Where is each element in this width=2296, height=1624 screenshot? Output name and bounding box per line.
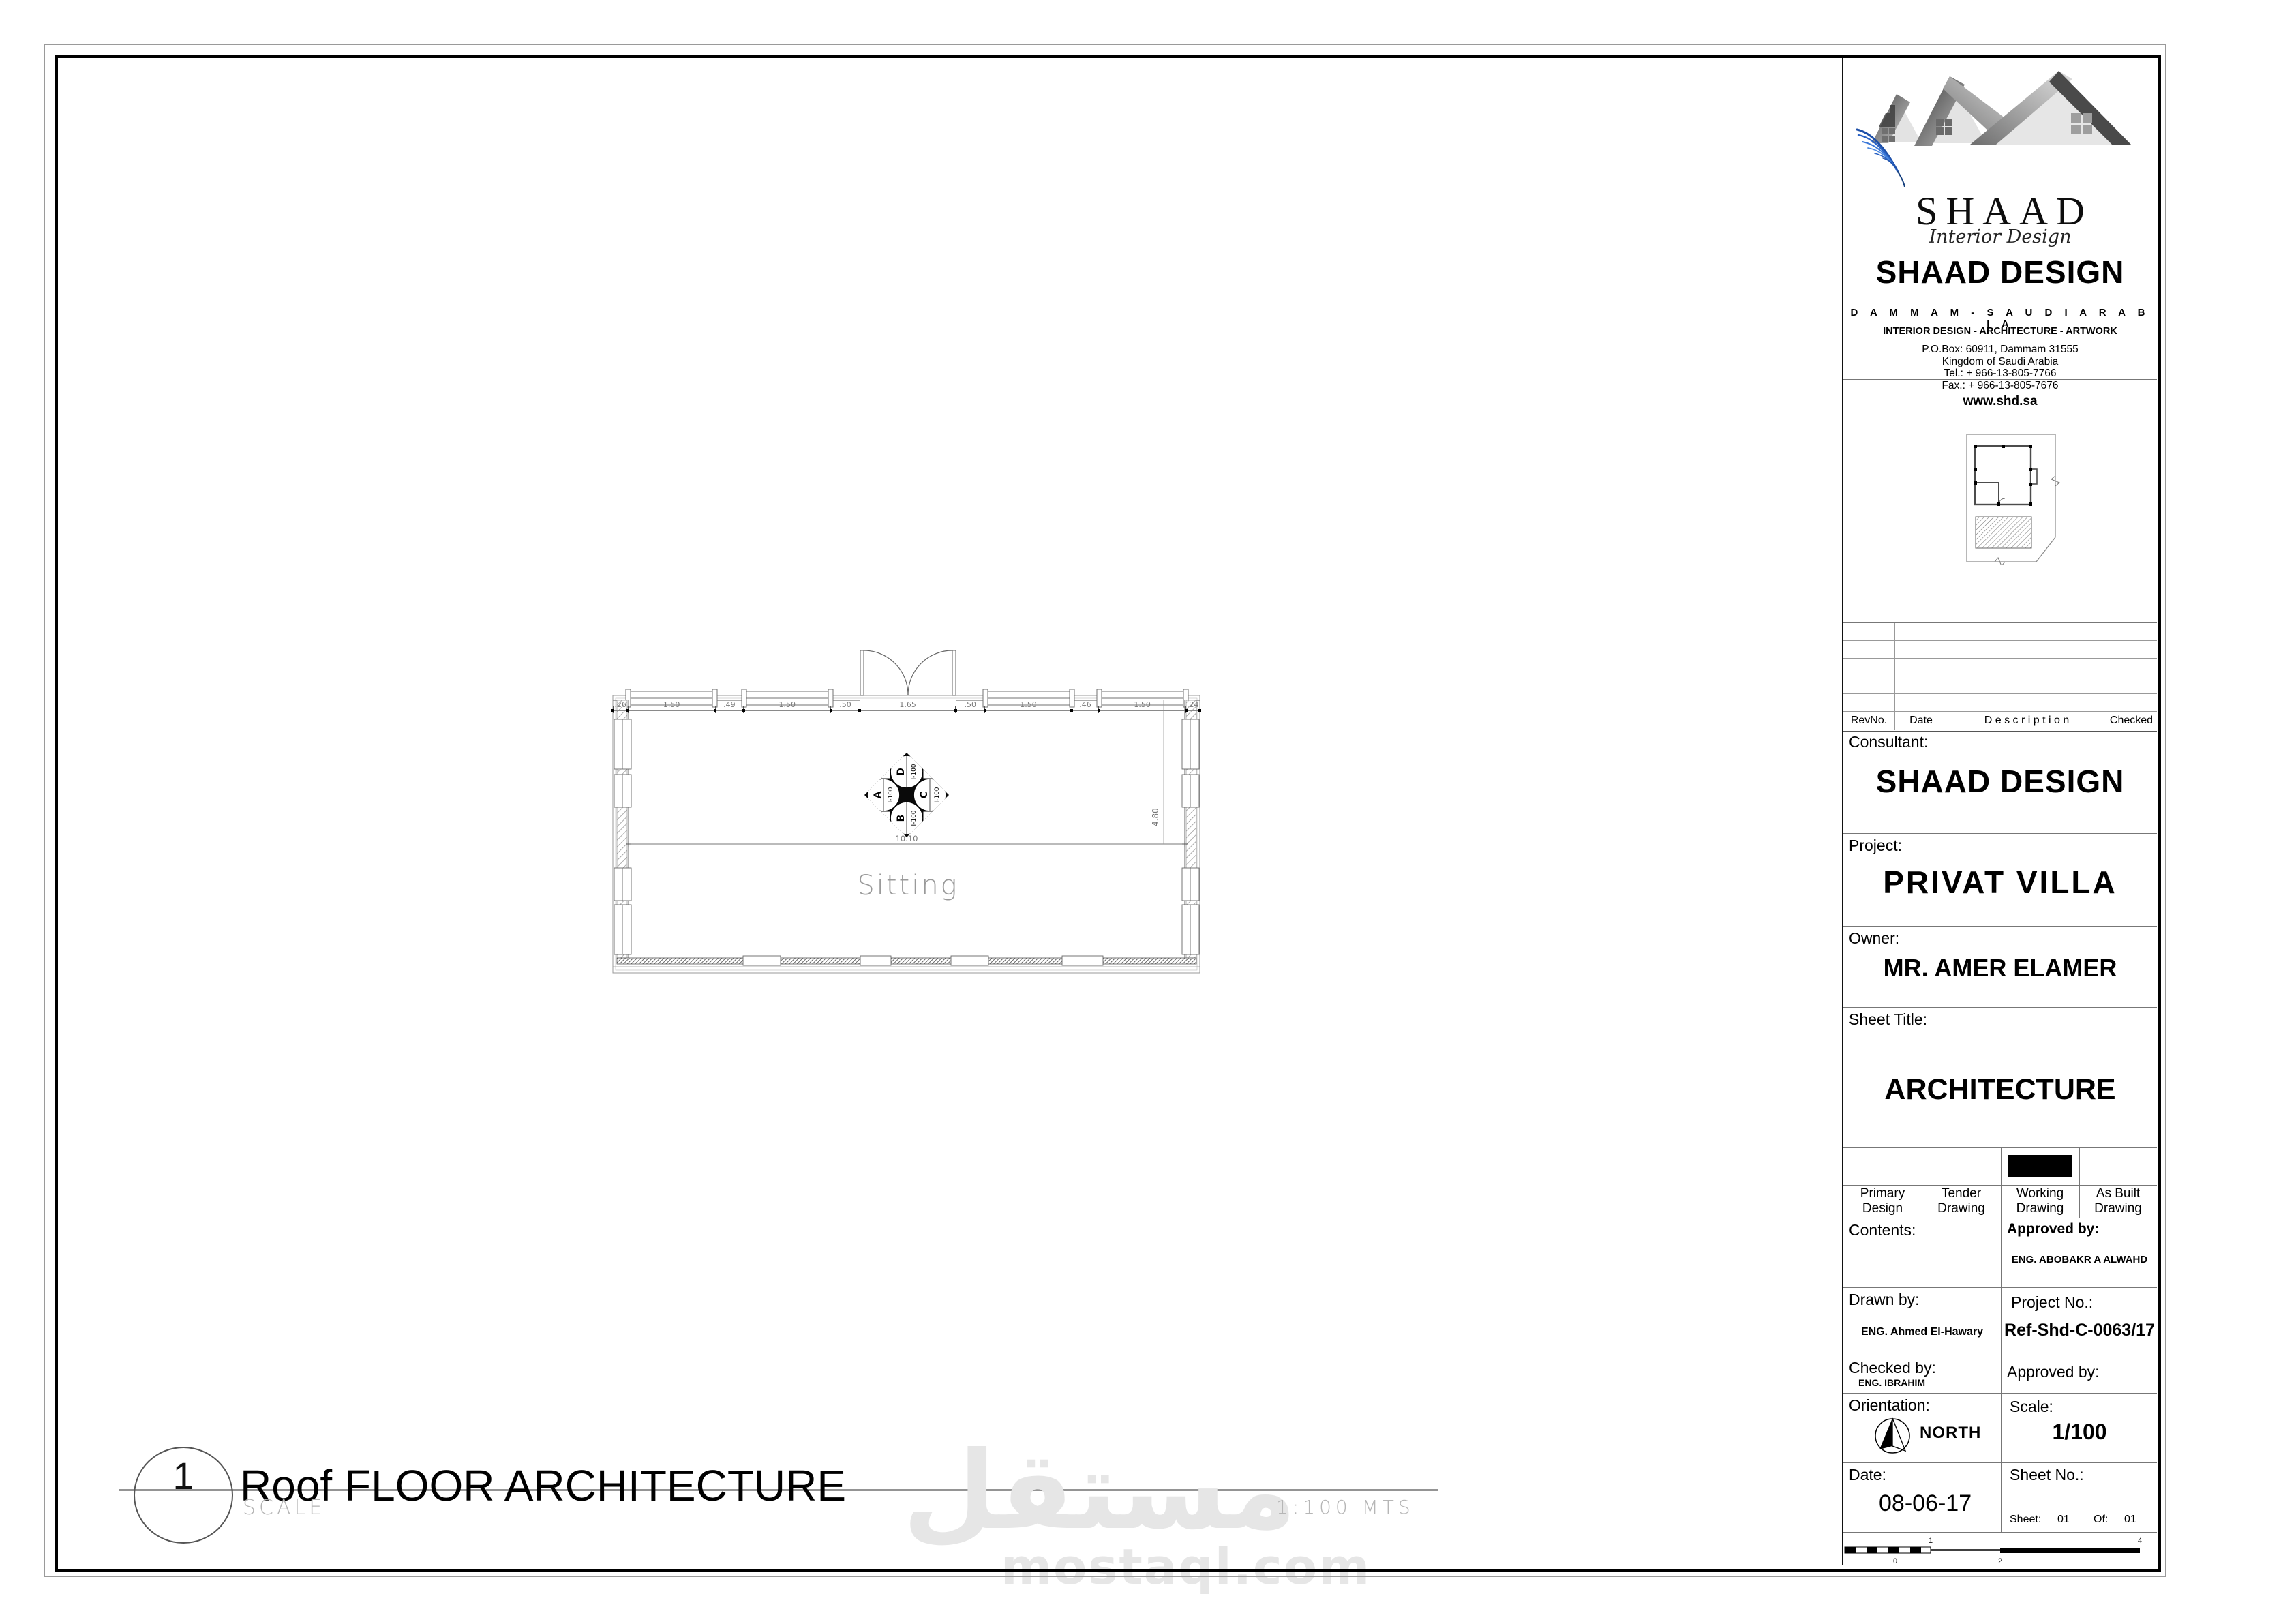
marker-bottom-ref: I-100 xyxy=(911,810,918,826)
approved-by2-label: Approved by: xyxy=(2007,1363,2100,1381)
watermark-latin: mostaql.com xyxy=(1001,1538,1301,1595)
marker-left-letter: A xyxy=(873,791,883,798)
dimension-label: 1.50 xyxy=(1134,700,1151,709)
company-name: SHAAD DESIGN xyxy=(1843,254,2157,290)
north-arrow-icon xyxy=(1872,1415,1913,1455)
company-logo-graphic xyxy=(1856,61,2145,191)
scalebar-4: 4 xyxy=(2138,1537,2142,1545)
type-tender-drawing: Tender Drawing xyxy=(1922,1186,2001,1216)
dimension-tick-dot xyxy=(858,709,861,712)
project-no-label: Project No.: xyxy=(2011,1293,2093,1312)
revision-row xyxy=(1843,694,2157,712)
orientation-value: NORTH xyxy=(1920,1424,1981,1443)
dimension-tick-dot xyxy=(1185,709,1188,712)
of-label: Of: xyxy=(2094,1514,2108,1526)
logo-tagline: Interior Design xyxy=(1864,226,2136,247)
dimension-label: .50 xyxy=(839,700,851,709)
dimension-tick-dot xyxy=(1098,709,1100,712)
drawing-title: Roof FLOOR ARCHITECTURE xyxy=(240,1460,846,1511)
scale-note: 1:100 MTS xyxy=(1276,1496,1415,1518)
dimension-label: .49 xyxy=(723,700,736,709)
drawn-by-label: Drawn by: xyxy=(1849,1291,1920,1309)
revision-table: RevNo. Date D e s c r i p t i o n Checke… xyxy=(1843,622,2157,730)
dimension-label: .26 xyxy=(614,700,626,709)
address-line: Kingdom of Saudi Arabia xyxy=(1843,356,2157,368)
drawn-by-value: ENG. Ahmed El-Hawary xyxy=(1843,1326,2001,1338)
contents-label: Contents: xyxy=(1849,1221,1916,1239)
marker-bottom-letter: B xyxy=(896,815,907,822)
checked-by-label: Checked by: xyxy=(1849,1359,1936,1377)
address-line: P.O.Box: 60911, Dammam 31555 xyxy=(1843,344,2157,356)
dimension-tick-dot xyxy=(1198,709,1201,712)
revision-row xyxy=(1843,676,2157,694)
rev-col-revno: RevNo. xyxy=(1843,715,1894,727)
project-value: PRIVAT VILLA xyxy=(1843,864,2157,901)
dimension-tick-dot xyxy=(830,709,832,712)
scalebar-1: 1 xyxy=(1929,1537,1933,1545)
of-number: 01 xyxy=(2124,1514,2136,1526)
dimension-tick-dot xyxy=(1070,709,1073,712)
consultant-section: Consultant: SHAAD DESIGN xyxy=(1843,730,2157,833)
date-section: Date: 08-06-17 Sheet No.: Sheet: 01 Of: … xyxy=(1843,1462,2157,1532)
company-services: INTERIOR DESIGN - ARCHITECTURE - ARTWORK xyxy=(1843,326,2157,337)
sheet-title-value: ARCHITECTURE xyxy=(1843,1073,2157,1107)
drawn-by-section: Drawn by: ENG. Ahmed El-Hawary Project N… xyxy=(1843,1287,2157,1357)
dimension-label: .24 xyxy=(1187,700,1199,709)
revision-row xyxy=(1843,641,2157,659)
project-section: Project: PRIVAT VILLA xyxy=(1843,833,2157,926)
dimension-label: 1.50 xyxy=(1020,700,1037,709)
address-line: Tel.: + 966-13-805-7766 xyxy=(1843,367,2157,380)
owner-value: MR. AMER ELAMER xyxy=(1843,954,2157,982)
dimension-tick-dot xyxy=(714,709,716,712)
dimension-label: 1.50 xyxy=(779,700,796,709)
scale-caption: SCALE xyxy=(243,1496,325,1520)
sheet-label: Sheet: xyxy=(2010,1514,2041,1526)
consultant-label: Consultant: xyxy=(1849,733,1928,751)
contents-section: Contents: Approved by: ENG. ABOBAKR A AL… xyxy=(1843,1218,2157,1287)
approved-by-label: Approved by: xyxy=(2007,1221,2099,1237)
view-number-bubble: 1 xyxy=(134,1447,233,1544)
marker-right-ref: I-100 xyxy=(934,787,941,802)
key-plan-thumbnail xyxy=(1966,434,2061,565)
title-block: SHAAD Interior Design SHAAD DESIGN D A M… xyxy=(1842,55,2157,1565)
type-working-drawing: Working Drawing xyxy=(2001,1186,2079,1216)
checked-by-value: ENG. IBRAHIM xyxy=(1858,1377,1925,1388)
owner-section: Owner: MR. AMER ELAMER xyxy=(1843,926,2157,1007)
scalebar-2: 2 xyxy=(1998,1557,2002,1565)
scale-bar-graphic: 0 1 2 4 xyxy=(1843,1533,2157,1566)
revision-row xyxy=(1843,659,2157,676)
company-section: SHAAD Interior Design SHAAD DESIGN D A M… xyxy=(1843,55,2157,379)
marker-left-ref: I-100 xyxy=(888,787,894,802)
orientation-label: Orientation: xyxy=(1849,1396,1930,1415)
sheet-title-section: Sheet Title: ARCHITECTURE xyxy=(1843,1007,2157,1147)
consultant-value: SHAAD DESIGN xyxy=(1843,763,2157,800)
drawing-sheet: مستقل mostaql.com xyxy=(0,0,2296,1624)
top-dimension-strip: .261.50.491.50.501.65.501.50.461.50.24 xyxy=(613,700,1200,713)
type-as-built-drawing: As Built Drawing xyxy=(2079,1186,2157,1216)
bottom-wall xyxy=(617,958,1196,964)
revision-table-header: RevNo. Date D e s c r i p t i o n Checke… xyxy=(1843,712,2157,732)
dimension-label: 1.50 xyxy=(663,700,680,709)
rev-col-date: Date xyxy=(1894,715,1948,727)
dimension-tick-dot xyxy=(984,709,986,712)
key-plan-section xyxy=(1843,379,2157,622)
sheet-title-label: Sheet Title: xyxy=(1849,1010,1927,1029)
owner-label: Owner: xyxy=(1849,929,1899,948)
drawing-type-table: Primary Design Tender Drawing Working Dr… xyxy=(1843,1147,2157,1218)
date-label: Date: xyxy=(1849,1466,1886,1484)
revision-row xyxy=(1843,623,2157,641)
room-label: Sitting xyxy=(857,870,958,901)
section-marker: D I-100 A I-100 C I-100 B I-100 xyxy=(864,753,949,837)
rev-col-checked: Checked xyxy=(2106,715,2157,727)
dimension-tick-dot xyxy=(954,709,957,712)
sheet-no-label: Sheet No.: xyxy=(2010,1466,2084,1484)
entrance-door xyxy=(860,650,956,695)
scale-label: Scale: xyxy=(2010,1398,2053,1416)
dimension-label: 1.65 xyxy=(899,700,916,709)
floor-plan: 4.80 10.10 D I-100 A I-100 C xyxy=(607,641,1207,982)
watermark-arabic: مستقل xyxy=(997,1437,1297,1545)
marker-top-ref: I-100 xyxy=(911,764,918,779)
graphic-scale-bar: 0 1 2 4 xyxy=(1843,1532,2157,1565)
dimension-tick-dot xyxy=(611,709,614,712)
orientation-section: Orientation: NORTH Scale: 1/100 xyxy=(1843,1393,2157,1462)
checked-by-section: Checked by: ENG. IBRAHIM Approved by: xyxy=(1843,1357,2157,1393)
dimension-label: .50 xyxy=(965,700,977,709)
marker-top-letter: D xyxy=(896,768,907,776)
type-primary-design: Primary Design xyxy=(1843,1186,1922,1216)
dimension-tick-dot xyxy=(742,709,745,712)
sheet-number: 01 xyxy=(2057,1514,2070,1526)
marker-right-letter: C xyxy=(919,792,930,798)
dimension-tick-dot xyxy=(626,709,629,712)
scalebar-0: 0 xyxy=(1893,1557,1897,1565)
approved-by-value: ENG. ABOBAKR A ALWAHD xyxy=(2002,1254,2158,1265)
scale-value: 1/100 xyxy=(2002,1419,2158,1445)
vertical-dim: 4.80 xyxy=(1151,808,1160,826)
rev-col-description: D e s c r i p t i o n xyxy=(1948,715,2106,727)
dimension-label: .46 xyxy=(1079,700,1091,709)
selected-type-mark xyxy=(2008,1155,2072,1177)
dimension-line xyxy=(613,710,1200,711)
date-value: 08-06-17 xyxy=(1879,1490,1972,1517)
project-no-value: Ref-Shd-C-0063/17 xyxy=(2002,1321,2158,1340)
view-number: 1 xyxy=(135,1454,232,1498)
project-label: Project: xyxy=(1849,837,1902,855)
